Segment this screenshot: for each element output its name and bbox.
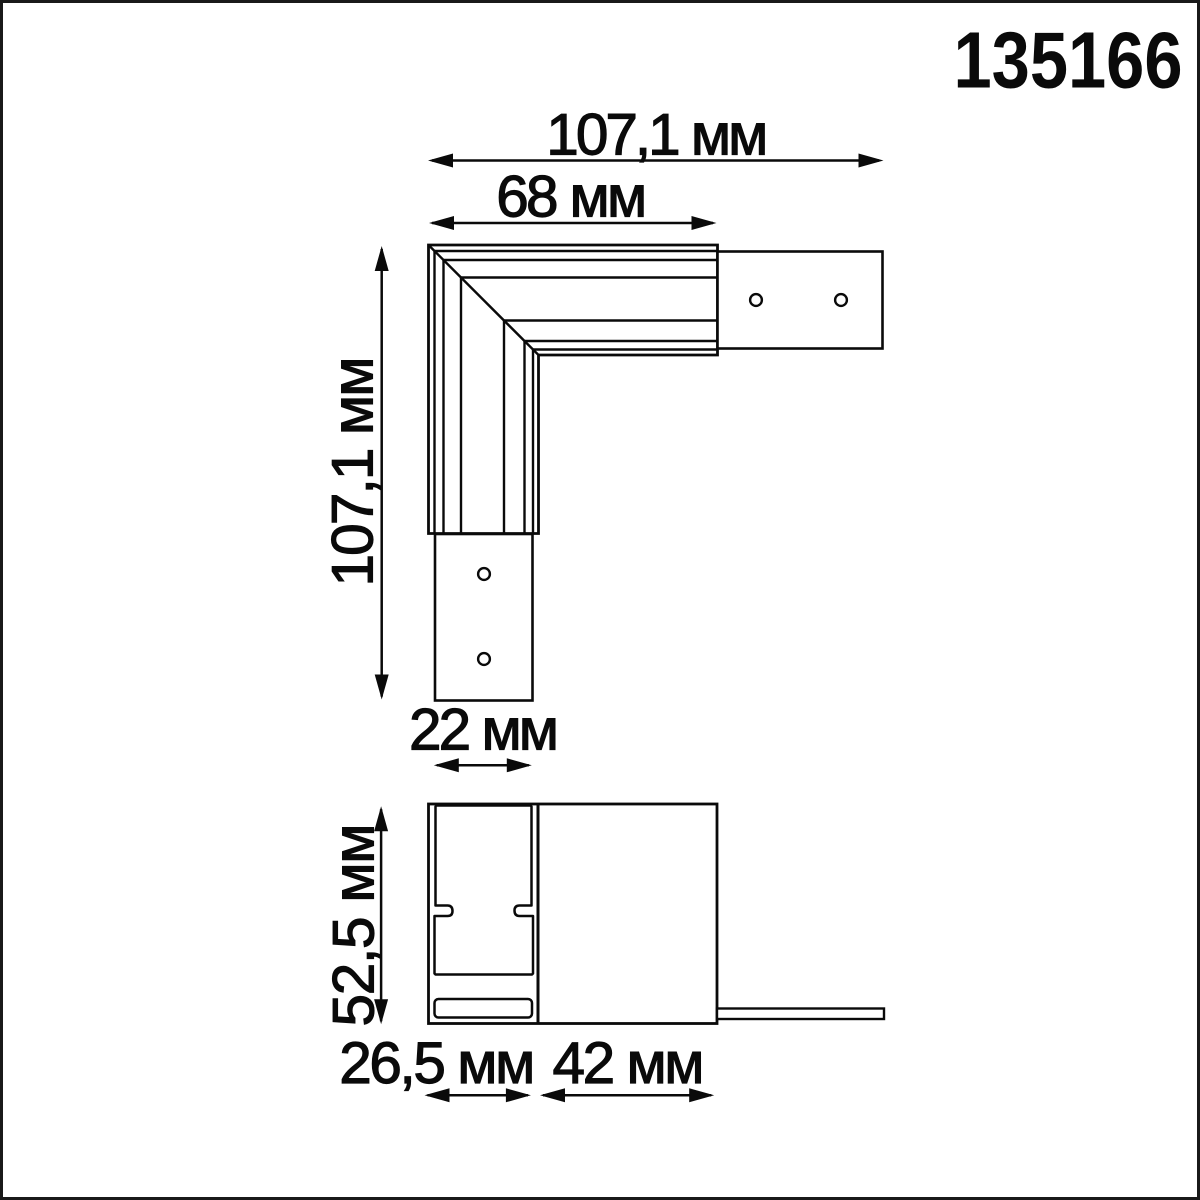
svg-text:68 мм: 68 мм (496, 165, 647, 230)
svg-text:22 мм: 22 мм (409, 698, 559, 763)
svg-text:26,5 мм: 26,5 мм (339, 1031, 535, 1096)
svg-text:52,5 мм: 52,5 мм (322, 824, 387, 1027)
svg-text:42 мм: 42 мм (553, 1031, 705, 1096)
svg-text:107,1 мм: 107,1 мм (546, 103, 768, 168)
svg-text:135166: 135166 (954, 16, 1183, 105)
svg-text:107,1 мм: 107,1 мм (321, 357, 386, 587)
